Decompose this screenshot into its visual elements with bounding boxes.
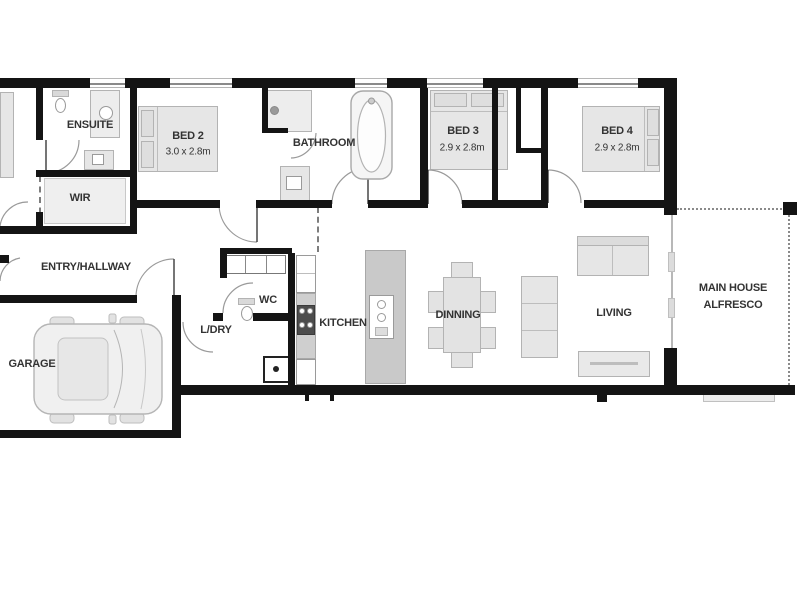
- wc-wall-top: [220, 248, 292, 254]
- room-label-bed2: BED 2: [172, 130, 203, 142]
- wir-wall-left-stub: [36, 212, 43, 228]
- floor-plan: ENSUITE BED 2 3.0 x 2.8m WIR BATHROOM BE…: [0, 0, 800, 600]
- room-label-garage: GARAGE: [8, 358, 55, 370]
- door-leaves: [46, 140, 548, 297]
- bathroom-wall-right: [420, 88, 428, 208]
- window: [578, 78, 638, 88]
- wall-top: [483, 78, 578, 88]
- bed4-door-arc: [548, 170, 581, 203]
- room-label-alfresco-line2: ALFRESCO: [704, 299, 763, 311]
- window: [427, 78, 483, 88]
- ldry-wall: [253, 313, 295, 321]
- room-label-ldry: L/DRY: [200, 324, 232, 336]
- ensuite-door-arc: [46, 140, 79, 173]
- room-label-alfresco-line1: MAIN HOUSE: [699, 282, 767, 294]
- hall-wall: [130, 200, 220, 208]
- wir-wall-bottom: [0, 226, 137, 234]
- window: [170, 78, 232, 88]
- wall-top: [232, 78, 355, 88]
- wall-top: [0, 78, 90, 88]
- cropped-door-arc: [0, 202, 28, 226]
- wir-wall-top: [36, 170, 137, 177]
- bed2-wall-left: [130, 88, 137, 233]
- wall-tick: [330, 393, 334, 401]
- room-label-bed4: BED 4: [601, 125, 632, 137]
- wc-wall-left-nib: [220, 248, 227, 278]
- room-label-bed3: BED 3: [447, 125, 478, 137]
- room-label-wir: WIR: [70, 192, 91, 204]
- wall-top: [387, 78, 427, 88]
- room-dims-bed4: 2.9 x 2.8m: [595, 143, 640, 154]
- hall-wall: [368, 200, 428, 208]
- bed3-door-arc: [428, 170, 462, 204]
- wall-top: [125, 78, 170, 88]
- car-mirror: [109, 314, 116, 323]
- car-mirror: [109, 415, 116, 424]
- bed2-door-arc: [219, 204, 257, 242]
- window: [90, 78, 125, 88]
- ensuite-wall-left: [36, 88, 43, 140]
- wall-right-upper: [664, 78, 677, 215]
- room-label-ensuite: ENSUITE: [67, 119, 113, 131]
- garage-wall-top: [0, 295, 137, 303]
- room-label-entry: ENTRY/HALLWAY: [41, 261, 131, 273]
- bed3-robe-wall: [492, 88, 498, 205]
- bathroom-wall-left: [262, 88, 268, 133]
- room-label-bathroom: BATHROOM: [293, 137, 355, 149]
- room-label-wc: WC: [259, 294, 277, 306]
- entry-door-arc: [136, 259, 174, 297]
- hall-wall: [256, 200, 332, 208]
- wall-stub: [0, 255, 9, 263]
- wc-door-arc: [223, 283, 253, 313]
- wall-tick: [305, 393, 309, 401]
- wall-stub: [597, 395, 607, 402]
- shower-nib-wall: [262, 128, 288, 133]
- bed4-wall-left: [541, 88, 548, 205]
- alfresco-post: [783, 202, 797, 215]
- garage-wall-bottom: [0, 430, 181, 438]
- room-label-living: LIVING: [596, 307, 631, 319]
- hall-wall: [584, 200, 667, 208]
- hall-wall: [462, 200, 548, 208]
- room-label-dinning: DINNING: [435, 309, 480, 321]
- bathtub-basin: [358, 100, 386, 172]
- bathtub-tap-icon: [369, 98, 375, 104]
- garage-wall-right: [172, 295, 181, 438]
- wall-bottom: [178, 385, 795, 395]
- window: [355, 78, 387, 88]
- room-label-kitchen: KITCHEN: [319, 317, 367, 329]
- room-dims-bed2: 3.0 x 2.8m: [166, 147, 211, 158]
- car-roof: [58, 338, 108, 400]
- robe-divider-wall: [516, 88, 521, 150]
- ldry-nib-wall: [213, 313, 223, 321]
- bathtub: [351, 91, 392, 179]
- room-dims-bed3: 2.9 x 2.8m: [440, 143, 485, 154]
